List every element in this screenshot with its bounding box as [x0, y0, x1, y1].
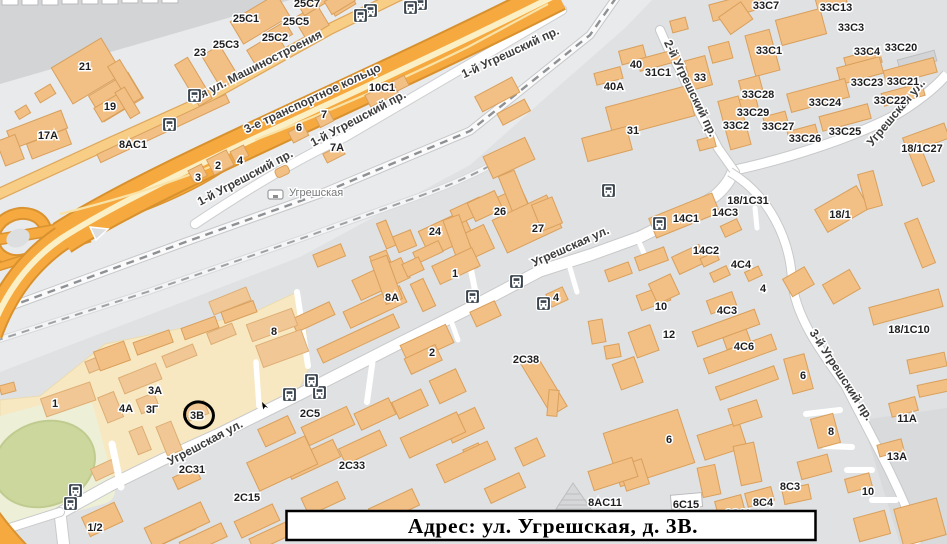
svg-text:1: 1 — [52, 398, 58, 410]
svg-text:25C2: 25C2 — [262, 32, 288, 44]
svg-text:2C31: 2C31 — [179, 464, 205, 476]
svg-text:4C4: 4C4 — [731, 259, 752, 271]
svg-text:3Г: 3Г — [146, 404, 159, 416]
svg-text:6: 6 — [666, 434, 672, 446]
svg-text:8: 8 — [828, 426, 834, 438]
svg-text:2C15: 2C15 — [234, 492, 260, 504]
svg-text:33C25: 33C25 — [829, 126, 861, 138]
svg-text:3В: 3В — [190, 410, 204, 422]
svg-text:4: 4 — [760, 283, 767, 295]
svg-text:33C27: 33C27 — [762, 121, 794, 133]
svg-text:11A: 11A — [897, 413, 917, 425]
svg-text:12: 12 — [663, 329, 675, 341]
svg-text:13A: 13A — [887, 451, 907, 463]
svg-text:3A: 3A — [148, 385, 162, 397]
svg-text:25C5: 25C5 — [283, 16, 309, 28]
svg-text:14C3: 14C3 — [712, 207, 738, 219]
svg-text:33C2: 33C2 — [723, 120, 749, 132]
svg-text:7А: 7А — [330, 142, 344, 154]
svg-text:18/1C31: 18/1C31 — [727, 195, 769, 207]
svg-text:4: 4 — [553, 292, 560, 304]
svg-text:4C3: 4C3 — [717, 305, 737, 317]
svg-text:7: 7 — [321, 109, 327, 121]
svg-text:40A: 40A — [604, 81, 624, 93]
svg-text:33C26: 33C26 — [789, 133, 821, 145]
svg-text:18/1C27: 18/1C27 — [901, 143, 943, 155]
svg-text:6: 6 — [800, 370, 806, 382]
svg-text:2C38: 2C38 — [513, 354, 539, 366]
svg-text:4: 4 — [237, 155, 244, 167]
svg-text:33C23: 33C23 — [851, 77, 883, 89]
svg-text:40: 40 — [630, 59, 642, 71]
svg-text:8C3: 8C3 — [780, 481, 800, 493]
svg-text:25C3: 25C3 — [213, 39, 239, 51]
svg-text:33C29: 33C29 — [737, 107, 769, 119]
svg-text:1/2: 1/2 — [87, 522, 102, 534]
svg-text:4C6: 4C6 — [734, 341, 754, 353]
svg-text:17A: 17A — [38, 130, 58, 142]
svg-text:8C4: 8C4 — [753, 497, 774, 509]
svg-text:33C13: 33C13 — [820, 2, 852, 14]
svg-text:8AC1: 8AC1 — [119, 139, 147, 151]
svg-text:8: 8 — [271, 326, 277, 338]
svg-text:24: 24 — [429, 226, 442, 238]
svg-text:33C3: 33C3 — [838, 22, 864, 34]
svg-text:31C1: 31C1 — [645, 67, 671, 79]
svg-text:6C15: 6C15 — [673, 499, 699, 511]
svg-text:2: 2 — [429, 347, 435, 359]
svg-text:14C1: 14C1 — [673, 213, 699, 225]
svg-text:33C1: 33C1 — [756, 45, 782, 57]
svg-text:2C5: 2C5 — [300, 408, 320, 420]
svg-text:25C1: 25C1 — [233, 13, 259, 25]
svg-text:18/1: 18/1 — [829, 209, 850, 221]
svg-text:Адрес: ул. Угрешская, д. 3В.: Адрес: ул. Угрешская, д. 3В. — [408, 514, 698, 538]
svg-text:21: 21 — [79, 61, 91, 73]
svg-text:33: 33 — [694, 72, 706, 84]
svg-text:3: 3 — [195, 172, 201, 184]
svg-text:25C7: 25C7 — [294, 0, 320, 10]
svg-text:33C28: 33C28 — [742, 89, 774, 101]
svg-text:19: 19 — [104, 101, 116, 113]
svg-text:8A: 8A — [385, 292, 399, 304]
svg-text:1: 1 — [452, 268, 458, 280]
svg-text:18/1C10: 18/1C10 — [888, 324, 930, 336]
svg-text:10C1: 10C1 — [369, 82, 395, 94]
svg-text:23: 23 — [194, 47, 206, 59]
svg-text:Угрешская: Угрешская — [289, 187, 343, 199]
svg-text:33C22: 33C22 — [874, 95, 906, 107]
svg-text:10: 10 — [862, 486, 874, 498]
svg-text:33C20: 33C20 — [885, 42, 917, 54]
svg-text:33C21: 33C21 — [887, 76, 919, 88]
svg-text:14C2: 14C2 — [693, 245, 719, 257]
svg-text:26: 26 — [494, 206, 506, 218]
svg-text:33C7: 33C7 — [753, 0, 779, 12]
svg-text:2: 2 — [215, 160, 221, 172]
svg-text:6: 6 — [296, 122, 302, 134]
svg-text:2C33: 2C33 — [339, 460, 365, 472]
svg-text:10: 10 — [655, 301, 667, 313]
svg-text:4A: 4A — [119, 403, 133, 415]
svg-text:33C4: 33C4 — [854, 46, 881, 58]
svg-text:31: 31 — [627, 125, 639, 137]
svg-text:33C24: 33C24 — [809, 97, 842, 109]
svg-text:27: 27 — [532, 223, 544, 235]
svg-text:8AC11: 8AC11 — [588, 497, 622, 509]
